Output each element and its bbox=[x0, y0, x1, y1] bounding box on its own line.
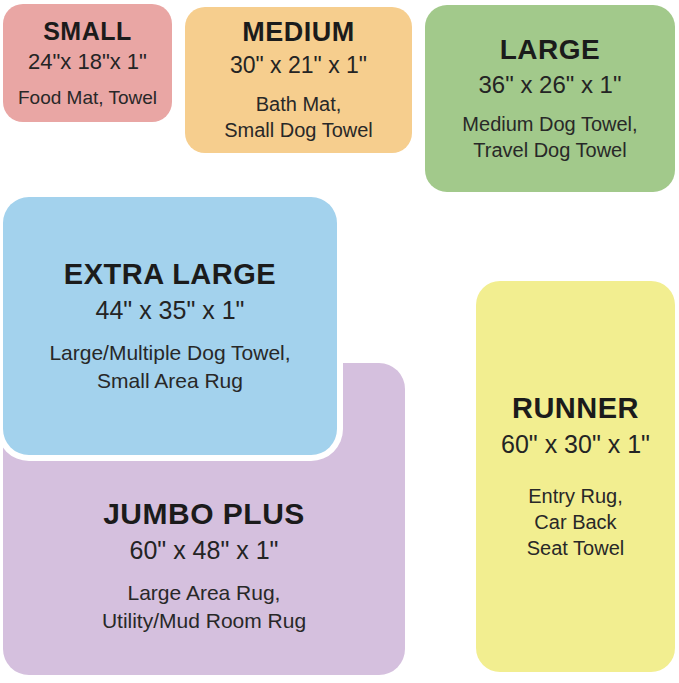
size-dimensions-medium: 30" x 21" x 1" bbox=[230, 51, 367, 81]
use-line: Car Back bbox=[527, 509, 624, 535]
size-comparison-chart: SMALL 24"x 18"x 1" Food Mat, Towel MEDIU… bbox=[0, 0, 679, 683]
size-card-extra-large: EXTRA LARGE 44" x 35" x 1" Large/Multipl… bbox=[3, 197, 337, 455]
size-name-jumbo-plus: JUMBO PLUS bbox=[103, 496, 305, 532]
size-card-large: LARGE 36" x 26" x 1" Medium Dog Towel, T… bbox=[425, 5, 675, 192]
use-line: Seat Towel bbox=[527, 535, 624, 561]
use-line: Large/Multiple Dog Towel, bbox=[49, 339, 290, 367]
use-line: Entry Rug, bbox=[527, 483, 624, 509]
size-name-runner: RUNNER bbox=[512, 391, 639, 426]
size-uses-jumbo-plus: Large Area Rug, Utility/Mud Room Rug bbox=[102, 579, 306, 634]
size-dimensions-large: 36" x 26" x 1" bbox=[479, 69, 622, 100]
size-card-small: SMALL 24"x 18"x 1" Food Mat, Towel bbox=[3, 4, 172, 122]
size-dimensions-small: 24"x 18"x 1" bbox=[28, 48, 147, 77]
size-uses-runner: Entry Rug, Car Back Seat Towel bbox=[527, 483, 624, 562]
size-uses-small: Food Mat, Towel bbox=[18, 85, 157, 110]
use-line: Utility/Mud Room Rug bbox=[102, 607, 306, 635]
size-uses-large: Medium Dog Towel, Travel Dog Towel bbox=[462, 111, 637, 164]
size-card-medium: MEDIUM 30" x 21" x 1" Bath Mat, Small Do… bbox=[185, 7, 412, 153]
use-line: Medium Dog Towel, bbox=[462, 111, 637, 137]
use-line: Small Dog Towel bbox=[224, 117, 373, 143]
use-line: Food Mat, Towel bbox=[18, 85, 157, 110]
size-name-medium: MEDIUM bbox=[242, 16, 355, 48]
use-line: Small Area Rug bbox=[49, 367, 290, 395]
size-dimensions-jumbo-plus: 60" x 48" x 1" bbox=[130, 534, 279, 567]
size-uses-extra-large: Large/Multiple Dog Towel, Small Area Rug bbox=[49, 339, 290, 394]
use-line: Bath Mat, bbox=[224, 91, 373, 117]
size-dimensions-runner: 60" x 30" x 1" bbox=[501, 428, 650, 461]
size-card-runner: RUNNER 60" x 30" x 1" Entry Rug, Car Bac… bbox=[476, 281, 675, 672]
size-dimensions-extra-large: 44" x 35" x 1" bbox=[96, 294, 245, 327]
size-uses-medium: Bath Mat, Small Dog Towel bbox=[224, 91, 373, 144]
size-name-extra-large: EXTRA LARGE bbox=[64, 257, 276, 292]
use-line: Large Area Rug, bbox=[102, 579, 306, 607]
size-name-large: LARGE bbox=[500, 33, 601, 67]
size-name-small: SMALL bbox=[43, 16, 132, 46]
use-line: Travel Dog Towel bbox=[462, 137, 637, 163]
